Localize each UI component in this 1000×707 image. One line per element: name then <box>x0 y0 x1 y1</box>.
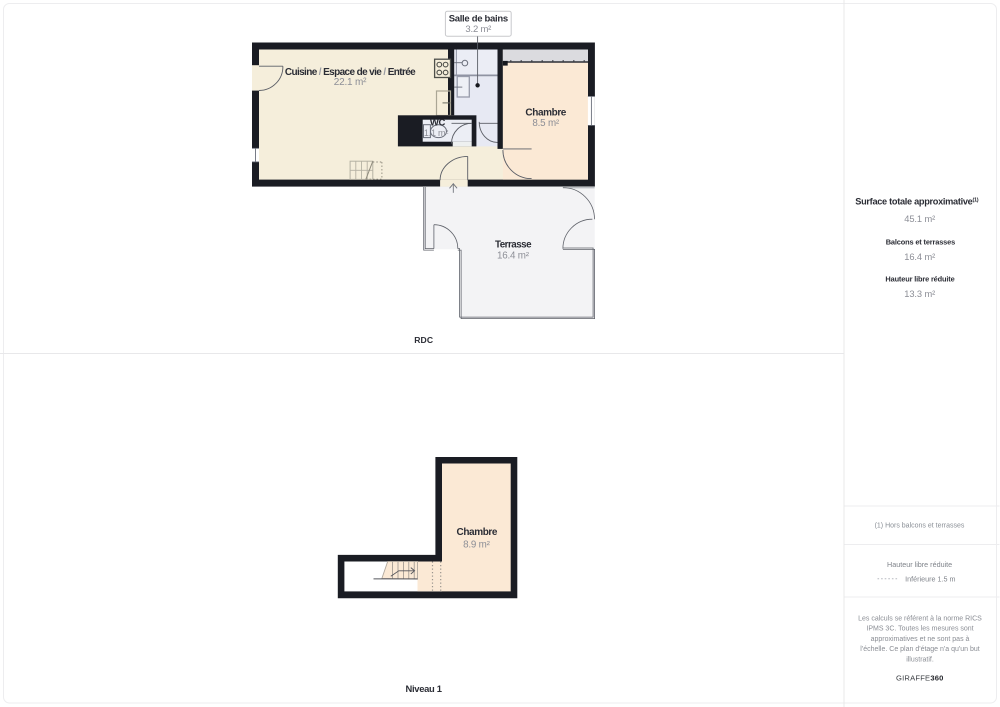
svg-text:(1) Hors balcons et terrasses: (1) Hors balcons et terrasses <box>875 522 965 529</box>
svg-text:1.1 m²: 1.1 m² <box>424 128 449 138</box>
svg-text:WC: WC <box>430 118 446 129</box>
svg-text:illustratif.: illustratif. <box>906 657 934 664</box>
svg-text:8.5 m²: 8.5 m² <box>532 118 560 129</box>
svg-text:16.4 m²: 16.4 m² <box>497 250 530 261</box>
svg-text:Chambre: Chambre <box>457 527 498 538</box>
svg-text:45.1 m²: 45.1 m² <box>904 214 935 224</box>
svg-text:16.4 m²: 16.4 m² <box>904 252 935 262</box>
svg-text:Chambre: Chambre <box>525 107 566 118</box>
svg-text:approximatives et ne sont pas: approximatives et ne sont pas à <box>871 636 970 643</box>
svg-text:RDC: RDC <box>414 335 433 345</box>
svg-text:Inférieure 1.5 m: Inférieure 1.5 m <box>905 574 955 583</box>
svg-text:13.3 m²: 13.3 m² <box>904 289 935 299</box>
svg-text:8.9 m²: 8.9 m² <box>463 539 491 550</box>
svg-text:Salle de bains: Salle de bains <box>449 14 508 25</box>
svg-text:GIRAFFE360: GIRAFFE360 <box>896 673 944 682</box>
svg-text:IPMS 3C. Toutes les mesures so: IPMS 3C. Toutes les mesures sont <box>866 626 973 633</box>
svg-text:l'échelle. Ce plan d'étage n'a: l'échelle. Ce plan d'étage n'a qu'un but <box>860 646 979 653</box>
svg-text:22.1 m²: 22.1 m² <box>334 77 367 88</box>
svg-text:Hauteur libre réduite: Hauteur libre réduite <box>885 275 954 284</box>
svg-text:Niveau 1: Niveau 1 <box>406 683 442 694</box>
svg-text:Hauteur libre réduite: Hauteur libre réduite <box>887 560 952 569</box>
svg-text:Surface totale approximative(1: Surface totale approximative(1) <box>855 196 979 206</box>
svg-text:Balcons et terrasses: Balcons et terrasses <box>886 237 955 246</box>
svg-text:Les calculs se référent à la n: Les calculs se référent à la norme RICS <box>858 615 982 622</box>
svg-text:3.2 m²: 3.2 m² <box>465 24 491 35</box>
svg-text:Terrasse: Terrasse <box>495 239 532 250</box>
